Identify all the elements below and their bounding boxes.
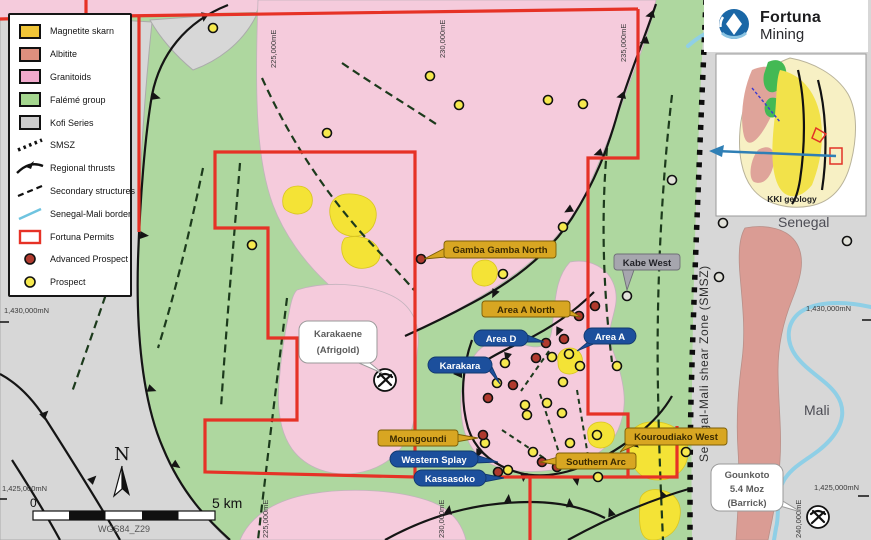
prospect-dot[interactable] [566,439,575,448]
coord-top-3: 235,000mE [619,24,628,62]
magnetite-skarn-swatch [16,24,44,39]
scale-zero: 0 [30,496,37,510]
legend-label: Fortuna Permits [50,232,114,242]
svg-text:Kouroudiako West: Kouroudiako West [634,432,719,443]
prospect-dot[interactable] [323,129,332,138]
prospect-dot[interactable] [593,431,602,440]
badge-gamba-gamba-north[interactable]: Gamba Gamba North [424,241,556,259]
legend-item-advanced-prospect: Advanced Prospect [16,248,128,271]
coord-bottom-1: 225,000mE [261,500,270,538]
legend-item-secondary-structures: Secondary structures [16,180,128,203]
prospect-dot-icon [16,274,44,290]
fortuna-permits-outline-icon [16,229,44,245]
prospect-dot[interactable] [504,466,513,475]
prospect-dot[interactable] [455,101,464,110]
svg-text:Area A North: Area A North [497,305,555,316]
prospect-dot[interactable] [499,270,508,279]
legend-label: Regional thrusts [50,163,115,173]
prospect-dot[interactable] [426,72,435,81]
karakaene-mine-icon[interactable] [374,369,396,391]
legend-item-granitoids: Granitoids [16,66,128,89]
prospect-dot-pale[interactable] [715,273,724,282]
svg-text:Kassasoko: Kassasoko [425,474,475,485]
coord-right-north-2: 1,425,000mN [814,483,859,492]
albitite-swatch [16,47,44,62]
coord-left-north-2: 1,425,000mN [2,484,47,493]
prospect-dot[interactable] [501,359,510,368]
gounkoto-mine-icon[interactable] [807,506,829,528]
prospect-dot[interactable] [544,96,553,105]
kki-geology-inset: KKI geology [709,54,866,216]
coord-bottom-2: 230,000mE [437,500,446,538]
prospect-dot-pale[interactable] [623,292,632,301]
svg-text:Kabe West: Kabe West [623,258,672,269]
legend-label: SMSZ [50,140,75,150]
prospect-dot[interactable] [209,24,218,33]
prospect-dot[interactable] [529,448,538,457]
legend-label: Senegal-Mali border [50,209,131,219]
granitoids-swatch [16,69,44,84]
badge-area-a-north[interactable]: Area A North [482,301,581,317]
advanced-prospect-dot[interactable] [479,431,488,440]
svg-text:(Afrigold): (Afrigold) [317,345,360,356]
advanced-prospect-dot[interactable] [542,339,551,348]
advanced-prospect-dot-icon [16,251,44,267]
coord-top-2: 230,000mE [438,20,447,58]
svg-text:Gounkoto: Gounkoto [725,470,770,481]
coord-left-north-1: 1,430,000mN [4,306,49,315]
legend-label: Albitite [50,49,77,59]
fortuna-mining-logo: Fortuna Mining [704,0,868,52]
svg-text:Southern Arc: Southern Arc [566,457,626,468]
legend-label: Secondary structures [50,186,135,196]
map-legend: Magnetite skarn Albitite Granitoids Falé… [8,13,132,297]
legend-label: Falémé group [50,95,106,105]
logo-subtitle: Mining [760,27,821,42]
legend-label: Kofi Series [50,118,94,128]
legend-item-albitite: Albitite [16,43,128,66]
inset-caption: KKI geology [767,194,817,204]
svg-text:(Barrick): (Barrick) [727,498,766,509]
prospect-dot[interactable] [565,350,574,359]
legend-label: Advanced Prospect [50,254,128,264]
advanced-prospect-dot[interactable] [591,302,600,311]
prospect-dot-pale[interactable] [843,237,852,246]
prospect-dot[interactable] [594,473,603,482]
svg-text:5.4 Moz: 5.4 Moz [730,484,765,495]
svg-text:Karakaene: Karakaene [314,329,362,340]
advanced-prospect-dot[interactable] [484,394,493,403]
legend-item-prospect: Prospect [16,271,128,294]
prospect-dot[interactable] [559,378,568,387]
prospect-dot[interactable] [548,353,557,362]
senegal-mali-border-line-icon [16,206,44,222]
prospect-dot[interactable] [523,411,532,420]
legend-item-kofi-series: Kofi Series [16,111,128,134]
scale-five-km: 5 km [212,495,242,511]
geology-map: 225,000mE 230,000mE 235,000mE 225,000mE … [0,0,871,540]
fortuna-logo-icon [716,6,752,47]
advanced-prospect-dot[interactable] [494,468,503,477]
svg-text:Area A: Area A [595,332,625,343]
smsz-line-icon [16,137,44,153]
coord-bottom-3: 240,000mE [794,500,803,538]
prospect-dot-pale[interactable] [668,176,677,185]
kofi-series-swatch [16,115,44,130]
legend-item-senegal-mali-border: Senegal-Mali border [16,202,128,225]
legend-item-magnetite-skarn: Magnetite skarn [16,20,128,43]
legend-item-fortuna-permits: Fortuna Permits [16,225,128,248]
prospect-dot-pale[interactable] [719,219,728,228]
legend-label: Granitoids [50,72,91,82]
svg-text:Western Splay: Western Splay [401,455,467,466]
regional-thrusts-line-icon [16,160,44,176]
legend-item-smsz: SMSZ [16,134,128,157]
prospect-dot[interactable] [682,448,691,457]
prospect-dot[interactable] [521,401,530,410]
coord-top-1: 225,000mE [269,30,278,68]
svg-text:Gamba Gamba North: Gamba Gamba North [452,245,547,256]
prospect-dot[interactable] [248,241,257,250]
coord-right-north-1: 1,430,000mN [806,304,851,313]
prospect-dot[interactable] [576,362,585,371]
legend-item-faleme-group: Falémé group [16,88,128,111]
svg-text:N: N [114,444,130,465]
mali-label: Mali [804,402,830,418]
prospect-dot[interactable] [579,100,588,109]
datum-label: WGS84_Z29 [98,524,150,534]
logo-title: Fortuna [760,10,821,26]
faleme-group-swatch [16,92,44,107]
prospect-dot[interactable] [559,223,568,232]
legend-label: Magnetite skarn [50,26,114,36]
prospect-dot[interactable] [543,399,552,408]
legend-label: Prospect [50,277,86,287]
secondary-structures-line-icon [16,183,44,199]
advanced-prospect-dot[interactable] [509,381,518,390]
advanced-prospect-dot[interactable] [560,335,569,344]
advanced-prospect-dot[interactable] [532,354,541,363]
prospect-dot[interactable] [613,362,622,371]
svg-text:Karakara: Karakara [440,361,481,372]
svg-text:Moungoundi: Moungoundi [390,434,447,445]
legend-item-regional-thrusts: Regional thrusts [16,157,128,180]
prospect-dot[interactable] [558,409,567,418]
svg-text:Area D: Area D [486,334,517,345]
